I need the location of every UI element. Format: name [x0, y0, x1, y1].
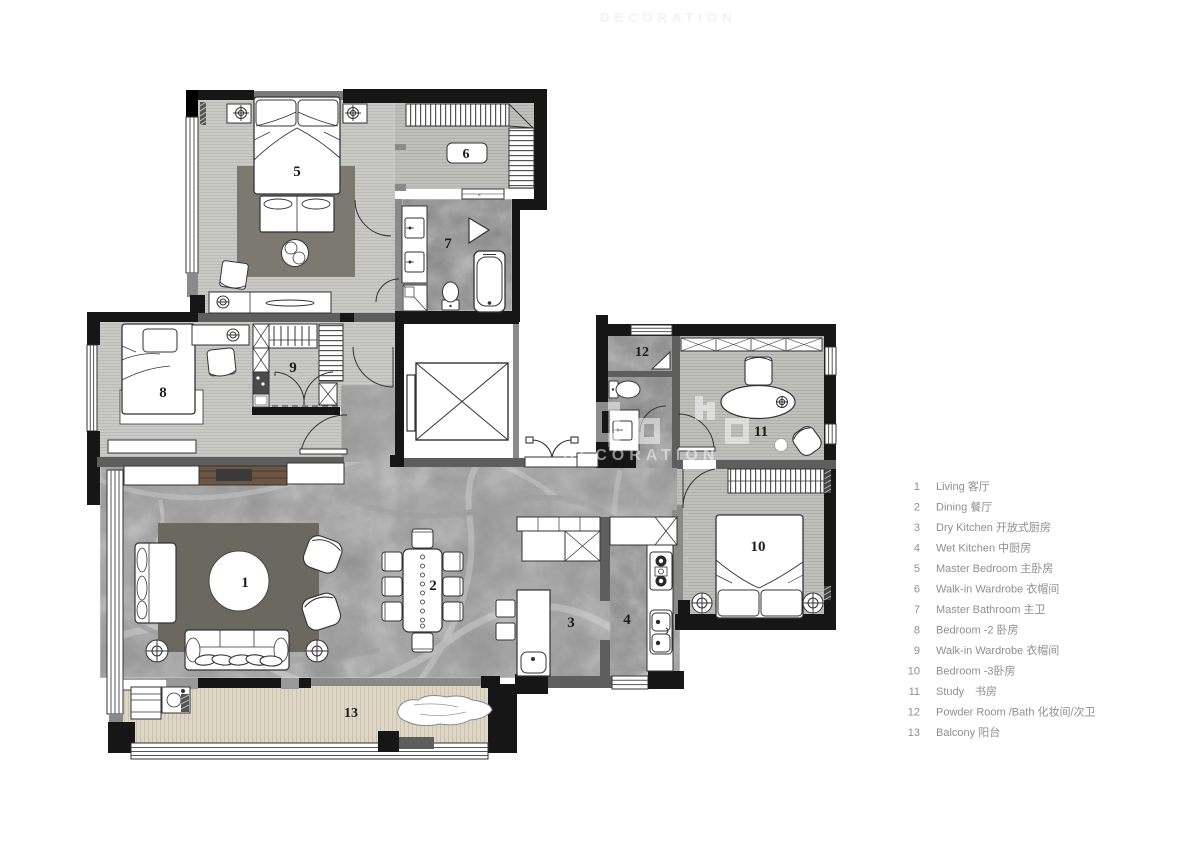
svg-text:≈: ≈ [478, 193, 481, 199]
svg-text:Balcony 阳台: Balcony 阳台 [936, 725, 1000, 739]
svg-text:5: 5 [914, 563, 920, 575]
svg-text:Wet Kitchen 中厨房: Wet Kitchen 中厨房 [936, 542, 1031, 555]
svg-text:Dining 餐厅: Dining 餐厅 [936, 500, 992, 514]
svg-text:11: 11 [754, 424, 768, 440]
svg-text:13: 13 [908, 727, 920, 739]
svg-text:10: 10 [751, 539, 766, 555]
svg-text:Master Bathroom 主卫: Master Bathroom 主卫 [936, 603, 1045, 616]
svg-text:1: 1 [241, 575, 249, 591]
svg-text:Walk-in Wardrobe 衣帽间: Walk-in Wardrobe 衣帽间 [936, 582, 1059, 596]
svg-text:Powder Room /Bath 化妆间/次卫: Powder Room /Bath 化妆间/次卫 [936, 705, 1096, 719]
svg-text:12: 12 [635, 345, 649, 360]
svg-text:DECORATION: DECORATION [600, 10, 736, 25]
svg-text:1: 1 [914, 481, 920, 493]
svg-text:Bedroom -3卧房: Bedroom -3卧房 [936, 665, 1015, 678]
svg-text:3: 3 [567, 615, 575, 631]
svg-text:6: 6 [914, 584, 920, 596]
svg-text:Bedroom -2 卧房: Bedroom -2 卧房 [936, 624, 1019, 637]
svg-text:2: 2 [429, 578, 437, 594]
svg-text:4: 4 [914, 543, 920, 555]
svg-text:12: 12 [908, 707, 920, 719]
svg-text:13: 13 [344, 706, 358, 721]
svg-text:11: 11 [909, 686, 920, 698]
svg-text:8: 8 [159, 385, 167, 401]
svg-text:2: 2 [914, 502, 920, 514]
svg-text:7: 7 [914, 604, 920, 616]
svg-text:7: 7 [444, 236, 452, 252]
svg-text:4: 4 [623, 612, 631, 628]
svg-text:Living 客厅: Living 客厅 [936, 479, 990, 493]
svg-text:DECORATION: DECORATION [563, 447, 719, 464]
svg-text:3: 3 [914, 522, 920, 534]
svg-text:Walk-in Wardrobe 衣帽间: Walk-in Wardrobe 衣帽间 [936, 643, 1059, 657]
svg-text:9: 9 [289, 360, 297, 376]
svg-text:5: 5 [293, 164, 301, 180]
svg-text:6: 6 [463, 147, 470, 162]
svg-text:Study: Study [936, 686, 965, 698]
svg-text:书房: 书房 [975, 685, 997, 698]
svg-text:Master Bedroom 主卧房: Master Bedroom 主卧房 [936, 562, 1053, 575]
svg-text:10: 10 [908, 666, 920, 678]
svg-text:9: 9 [914, 645, 920, 657]
svg-text:Dry Kitchen 开放式厨房: Dry Kitchen 开放式厨房 [936, 520, 1051, 534]
svg-text:8: 8 [914, 625, 920, 637]
